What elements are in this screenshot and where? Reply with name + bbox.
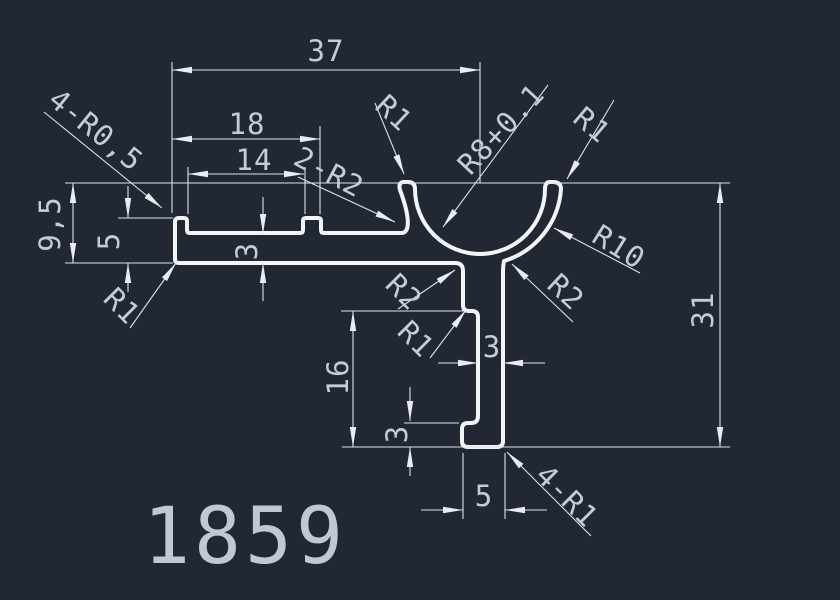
dim-slot-inner-width-label: 14 [236,143,273,177]
dim-bottom-left-radius-label: R1 [97,281,147,331]
dim-leg-fillet-left-label: R2 [379,267,429,317]
dim-foot-corner-radii-label: 4-R1 [529,458,605,534]
dim-leg-thickness-label: 3 [483,330,501,364]
extrusion-profile-outline [175,182,561,447]
dim-corner-radii-top-left-label: 4-R0,5 [42,82,149,178]
dim-channel-lip-left-radius-label: R1 [369,88,419,138]
dim-leg-height-label: 16 [321,359,355,396]
dim-left-height-label: 9,5 [33,196,67,251]
dim-channel-inner-radius-label: R8+0.1 [451,77,551,181]
part-number: 1859 [143,492,347,582]
dim-overall-width-label: 37 [308,34,345,68]
dim-floor-thickness-label: 3 [230,242,264,260]
dim-foot-height-label: 3 [380,425,414,443]
dimension-labels: 37 18 14 4-R0,5 9,5 5 R1 2-R2 R1 R8+0.1 … [33,34,720,534]
dim-overall-height-label: 31 [686,292,720,329]
dim-leg-fillet-right-label: R2 [541,267,591,317]
dim-slot-width-label: 18 [229,107,266,141]
dim-channel-outer-radius-label: R10 [587,218,652,276]
cad-drawing-area: 37 18 14 4-R0,5 9,5 5 R1 2-R2 R1 R8+0.1 … [0,0,840,600]
cad-drawing-canvas: 37 18 14 4-R0,5 9,5 5 R1 2-R2 R1 R8+0.1 … [0,0,840,600]
dim-foot-width-label: 5 [475,479,493,513]
dim-leg-step-radius-label: R1 [391,314,441,364]
dim-left-lip-height-label: 5 [92,232,126,250]
dim-slot-fillets-label: 2-R2 [288,140,369,205]
